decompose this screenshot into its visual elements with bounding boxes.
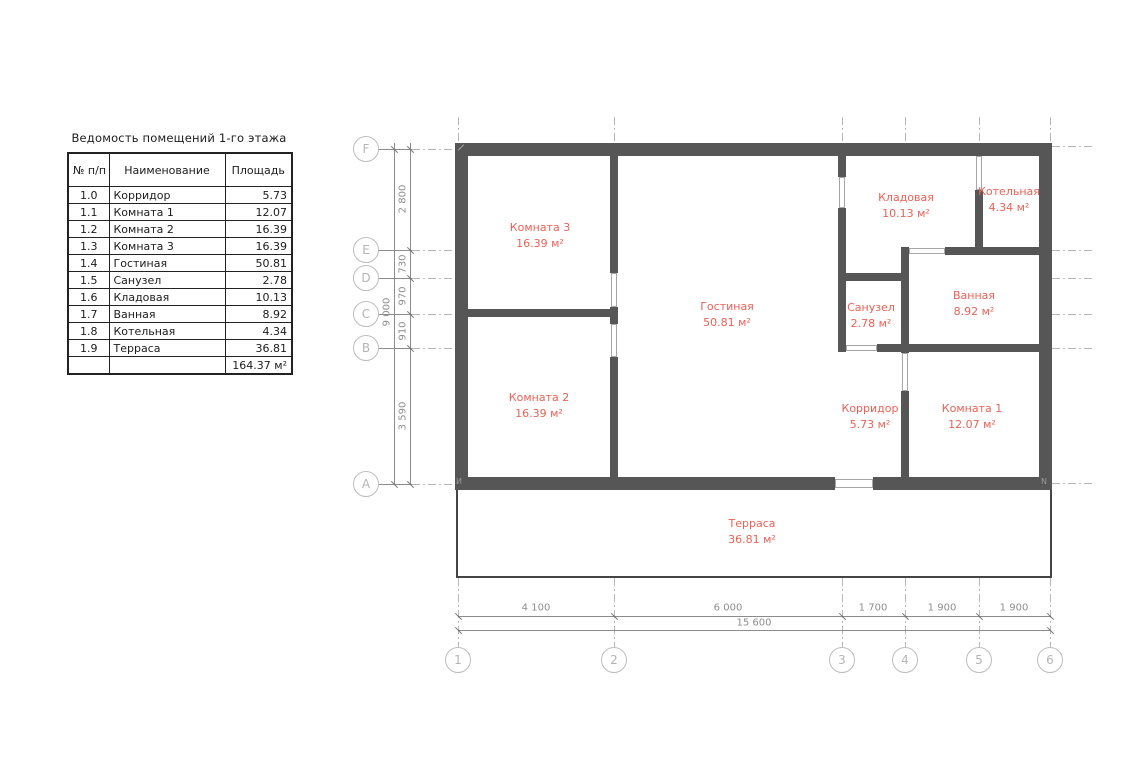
- axis-bubble-row: A: [353, 471, 379, 497]
- axis-bubble-col: 3: [829, 647, 855, 673]
- dim-label: 970: [398, 286, 409, 305]
- room-label-vannaya: Ванная 8.92 м²: [953, 288, 995, 320]
- cell-name: Корридор: [109, 187, 225, 204]
- wall-interior: [901, 391, 909, 477]
- cell-num: 1.6: [68, 289, 109, 306]
- cell-name: Комната 3: [109, 238, 225, 255]
- room-area: 4.34 м²: [989, 201, 1030, 214]
- axis-line: [412, 250, 455, 251]
- room-area: 8.92 м²: [954, 305, 995, 318]
- cell-num: 1.1: [68, 204, 109, 221]
- wall-interior: [468, 309, 610, 317]
- axis-line: [1050, 117, 1051, 143]
- axis-line: [458, 117, 459, 143]
- axis-line: [412, 278, 455, 279]
- room-name: Гостиная: [700, 300, 754, 313]
- room-name: Котельная: [978, 185, 1040, 198]
- table-row: 1.0Корридор5.73: [68, 187, 292, 204]
- table-header-row: № п/п Наименование Площадь: [68, 153, 292, 187]
- header-num: № п/п: [68, 153, 109, 187]
- axis-bubble-col: 5: [966, 647, 992, 673]
- cell-name: Комната 1: [109, 204, 225, 221]
- axis-leader: [379, 278, 412, 279]
- table-row: 1.2Комната 216.39: [68, 221, 292, 238]
- axis-bubble-row: B: [353, 335, 379, 361]
- room-area: 36.81 м²: [728, 533, 776, 546]
- room-name: Санузел: [847, 301, 895, 314]
- room-area: 5.73 м²: [850, 418, 891, 431]
- corner-mark: N: [1041, 478, 1047, 486]
- room-label-komnata3: Комната 3 16.39 м²: [510, 220, 570, 252]
- room-area: 12.07 м²: [948, 418, 996, 431]
- axis-bubble-row: E: [353, 237, 379, 263]
- wall-exterior-bottom: [455, 477, 835, 490]
- room-label-gostinaya: Гостиная 50.81 м²: [700, 299, 754, 331]
- cell-area: 8.92: [225, 306, 292, 323]
- door-terrace-exit: [835, 479, 873, 488]
- axis-line: [412, 314, 455, 315]
- cell-name: Ванная: [109, 306, 225, 323]
- axis-line: [1052, 278, 1093, 279]
- room-label-kladovaya: Кладовая 10.13 м²: [878, 190, 934, 222]
- cell-num: 1.7: [68, 306, 109, 323]
- axis-line: [458, 578, 459, 647]
- room-label-komnata1: Комната 1 12.07 м²: [942, 401, 1002, 433]
- table-row: 1.3Комната 316.39: [68, 238, 292, 255]
- axis-line: [1052, 314, 1093, 315]
- axis-line: [1052, 348, 1093, 349]
- axis-line: [1050, 578, 1051, 647]
- room-label-sanuzel: Санузел 2.78 м²: [847, 300, 895, 332]
- room-area: 2.78 м²: [851, 317, 892, 330]
- axis-line: [1052, 250, 1093, 251]
- dim-label: 1 700: [859, 603, 888, 614]
- room-name: Терраса: [729, 517, 776, 530]
- axis-line: [905, 117, 906, 143]
- room-area: 16.39 м²: [516, 237, 564, 250]
- room-name: Комната 1: [942, 402, 1002, 415]
- floor-plan-sheet: Ведомость помещений 1-го этажа № п/п Наи…: [0, 0, 1124, 766]
- axis-leader: [379, 250, 412, 251]
- cell-name: Гостиная: [109, 255, 225, 272]
- cell-num: 1.2: [68, 221, 109, 238]
- wall-interior: [945, 247, 1039, 255]
- dim-label: 910: [398, 321, 409, 340]
- axis-line: [412, 348, 455, 349]
- table-row: 1.7Ванная8.92: [68, 306, 292, 323]
- rooms-table: № п/п Наименование Площадь 1.0Корридор5.…: [67, 152, 293, 375]
- cell-area: 5.73: [225, 187, 292, 204]
- cell-name: Кладовая: [109, 289, 225, 306]
- cell-num: 1.3: [68, 238, 109, 255]
- wall-exterior-left: [455, 143, 468, 490]
- room-label-terrasa: Терраса 36.81 м²: [728, 516, 776, 548]
- wall-interior: [901, 247, 909, 353]
- axis-line: [614, 578, 615, 647]
- cell-num: 1.4: [68, 255, 109, 272]
- axis-line: [979, 578, 980, 647]
- cell-name: Терраса: [109, 340, 225, 357]
- room-area: 16.39 м²: [515, 407, 563, 420]
- cell-area: 10.13: [225, 289, 292, 306]
- cell-num: 1.9: [68, 340, 109, 357]
- dim-label: 730: [398, 254, 409, 273]
- axis-line: [1052, 146, 1093, 147]
- room-label-komnata2: Комната 2 16.39 м²: [509, 390, 569, 422]
- axis-bubble-row: F: [353, 136, 379, 162]
- cell-area: 50.81: [225, 255, 292, 272]
- dimension-line-left-total: [394, 143, 395, 484]
- table-row: 1.5Санузел2.78: [68, 272, 292, 289]
- cell-name: Комната 2: [109, 221, 225, 238]
- room-name: Корридор: [842, 402, 899, 415]
- room-name: Комната 2: [509, 391, 569, 404]
- header-area: Площадь: [225, 153, 292, 187]
- door-kladovaya: [839, 177, 845, 208]
- room-area: 50.81 м²: [703, 316, 751, 329]
- wall-interior: [838, 344, 846, 352]
- axis-bubble-col: 6: [1037, 647, 1063, 673]
- cell-area: 2.78: [225, 272, 292, 289]
- room-area: 10.13 м²: [882, 207, 930, 220]
- table-title: Ведомость помещений 1-го этажа: [55, 131, 303, 145]
- door-sanuzel: [846, 345, 877, 351]
- dimension-line-bottom-total: [458, 630, 1050, 631]
- room-label-korridor: Корридор 5.73 м²: [842, 401, 899, 433]
- corner-mark: И: [456, 478, 462, 486]
- dim-label: 1 900: [928, 603, 957, 614]
- axis-line: [842, 578, 843, 647]
- dim-label: 6 000: [714, 603, 743, 614]
- axis-line: [1052, 483, 1093, 484]
- axis-bubble-col: 2: [601, 647, 627, 673]
- door-komnata1: [902, 353, 908, 391]
- cell-area: 12.07: [225, 204, 292, 221]
- dim-label: 3 590: [398, 402, 409, 431]
- axis-bubble-col: 1: [445, 647, 471, 673]
- cell-area: 16.39: [225, 238, 292, 255]
- axis-line: [905, 578, 906, 647]
- cell-name: Котельная: [109, 323, 225, 340]
- wall-exterior-right: [1039, 143, 1052, 490]
- wall-interior: [610, 156, 618, 273]
- wall-exterior-top: [455, 143, 1052, 156]
- cell-total-area: 164.37 м²: [225, 357, 292, 375]
- dim-label-total: 9 000: [382, 298, 393, 327]
- wall-interior: [610, 307, 618, 324]
- door-komnata2: [611, 324, 617, 357]
- door-vannaya: [909, 248, 945, 254]
- table-row: 1.6Кладовая10.13: [68, 289, 292, 306]
- wall-exterior-bottom: [873, 477, 1052, 490]
- door-komnata3: [611, 273, 617, 307]
- wall-interior: [838, 156, 846, 177]
- header-name: Наименование: [109, 153, 225, 187]
- dim-label: 1 900: [1000, 603, 1029, 614]
- axis-leader: [379, 348, 412, 349]
- axis-line: [412, 484, 455, 485]
- cell-name: [109, 357, 225, 375]
- axis-bubble-col: 4: [892, 647, 918, 673]
- room-name: Ванная: [953, 289, 995, 302]
- table-row: 1.9Терраса36.81: [68, 340, 292, 357]
- dim-label: 2 800: [398, 185, 409, 214]
- wall-interior: [838, 273, 909, 281]
- table-row: 1.1Комната 112.07: [68, 204, 292, 221]
- axis-bubble-row: D: [353, 265, 379, 291]
- cell-area: 36.81: [225, 340, 292, 357]
- cell-num: 1.8: [68, 323, 109, 340]
- axis-line: [979, 117, 980, 143]
- dim-label: 4 100: [522, 603, 551, 614]
- room-label-kotelnaya: Котельная 4.34 м²: [978, 184, 1040, 216]
- axis-line: [614, 117, 615, 143]
- room-name: Комната 3: [510, 221, 570, 234]
- axis-line: [842, 117, 843, 143]
- table-row: 1.4Гостиная50.81: [68, 255, 292, 272]
- cell-name: Санузел: [109, 272, 225, 289]
- table-total-row: 164.37 м²: [68, 357, 292, 375]
- cell-num: 1.0: [68, 187, 109, 204]
- cell-area: 4.34: [225, 323, 292, 340]
- axis-line: [412, 149, 455, 150]
- table-row: 1.8Котельная4.34: [68, 323, 292, 340]
- cell-area: 16.39: [225, 221, 292, 238]
- axis-bubble-row: C: [353, 301, 379, 327]
- cell-num: [68, 357, 109, 375]
- room-name: Кладовая: [878, 191, 934, 204]
- cell-num: 1.5: [68, 272, 109, 289]
- wall-interior: [610, 357, 618, 477]
- dim-label-total: 15 600: [737, 618, 772, 629]
